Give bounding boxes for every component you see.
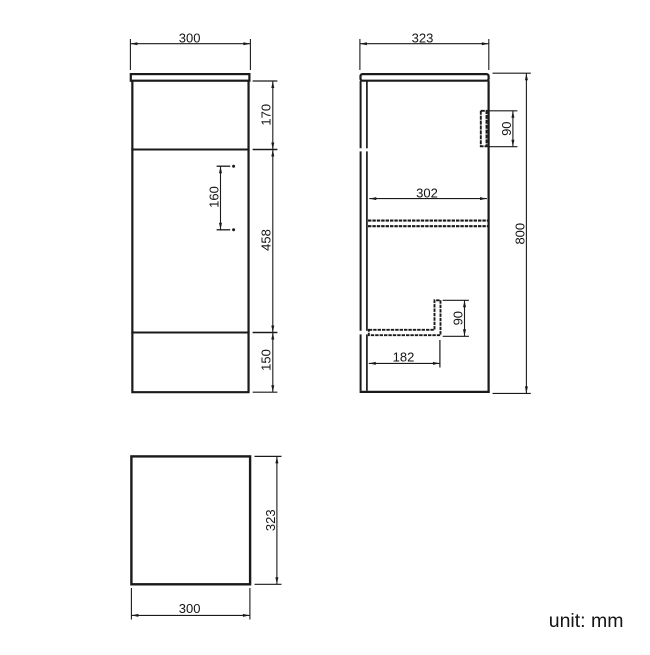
svg-text:170: 170	[259, 104, 274, 126]
svg-text:90: 90	[450, 311, 465, 325]
svg-text:150: 150	[259, 349, 274, 371]
svg-text:90: 90	[499, 121, 514, 135]
svg-text:300: 300	[179, 601, 201, 616]
svg-text:458: 458	[259, 229, 274, 251]
svg-text:302: 302	[416, 185, 438, 200]
svg-text:300: 300	[179, 30, 201, 45]
svg-text:323: 323	[263, 509, 278, 531]
svg-text:800: 800	[512, 223, 527, 245]
svg-text:323: 323	[412, 30, 434, 45]
svg-text:unit: mm: unit: mm	[549, 610, 624, 632]
svg-text:182: 182	[393, 349, 415, 364]
svg-text:160: 160	[206, 186, 221, 208]
